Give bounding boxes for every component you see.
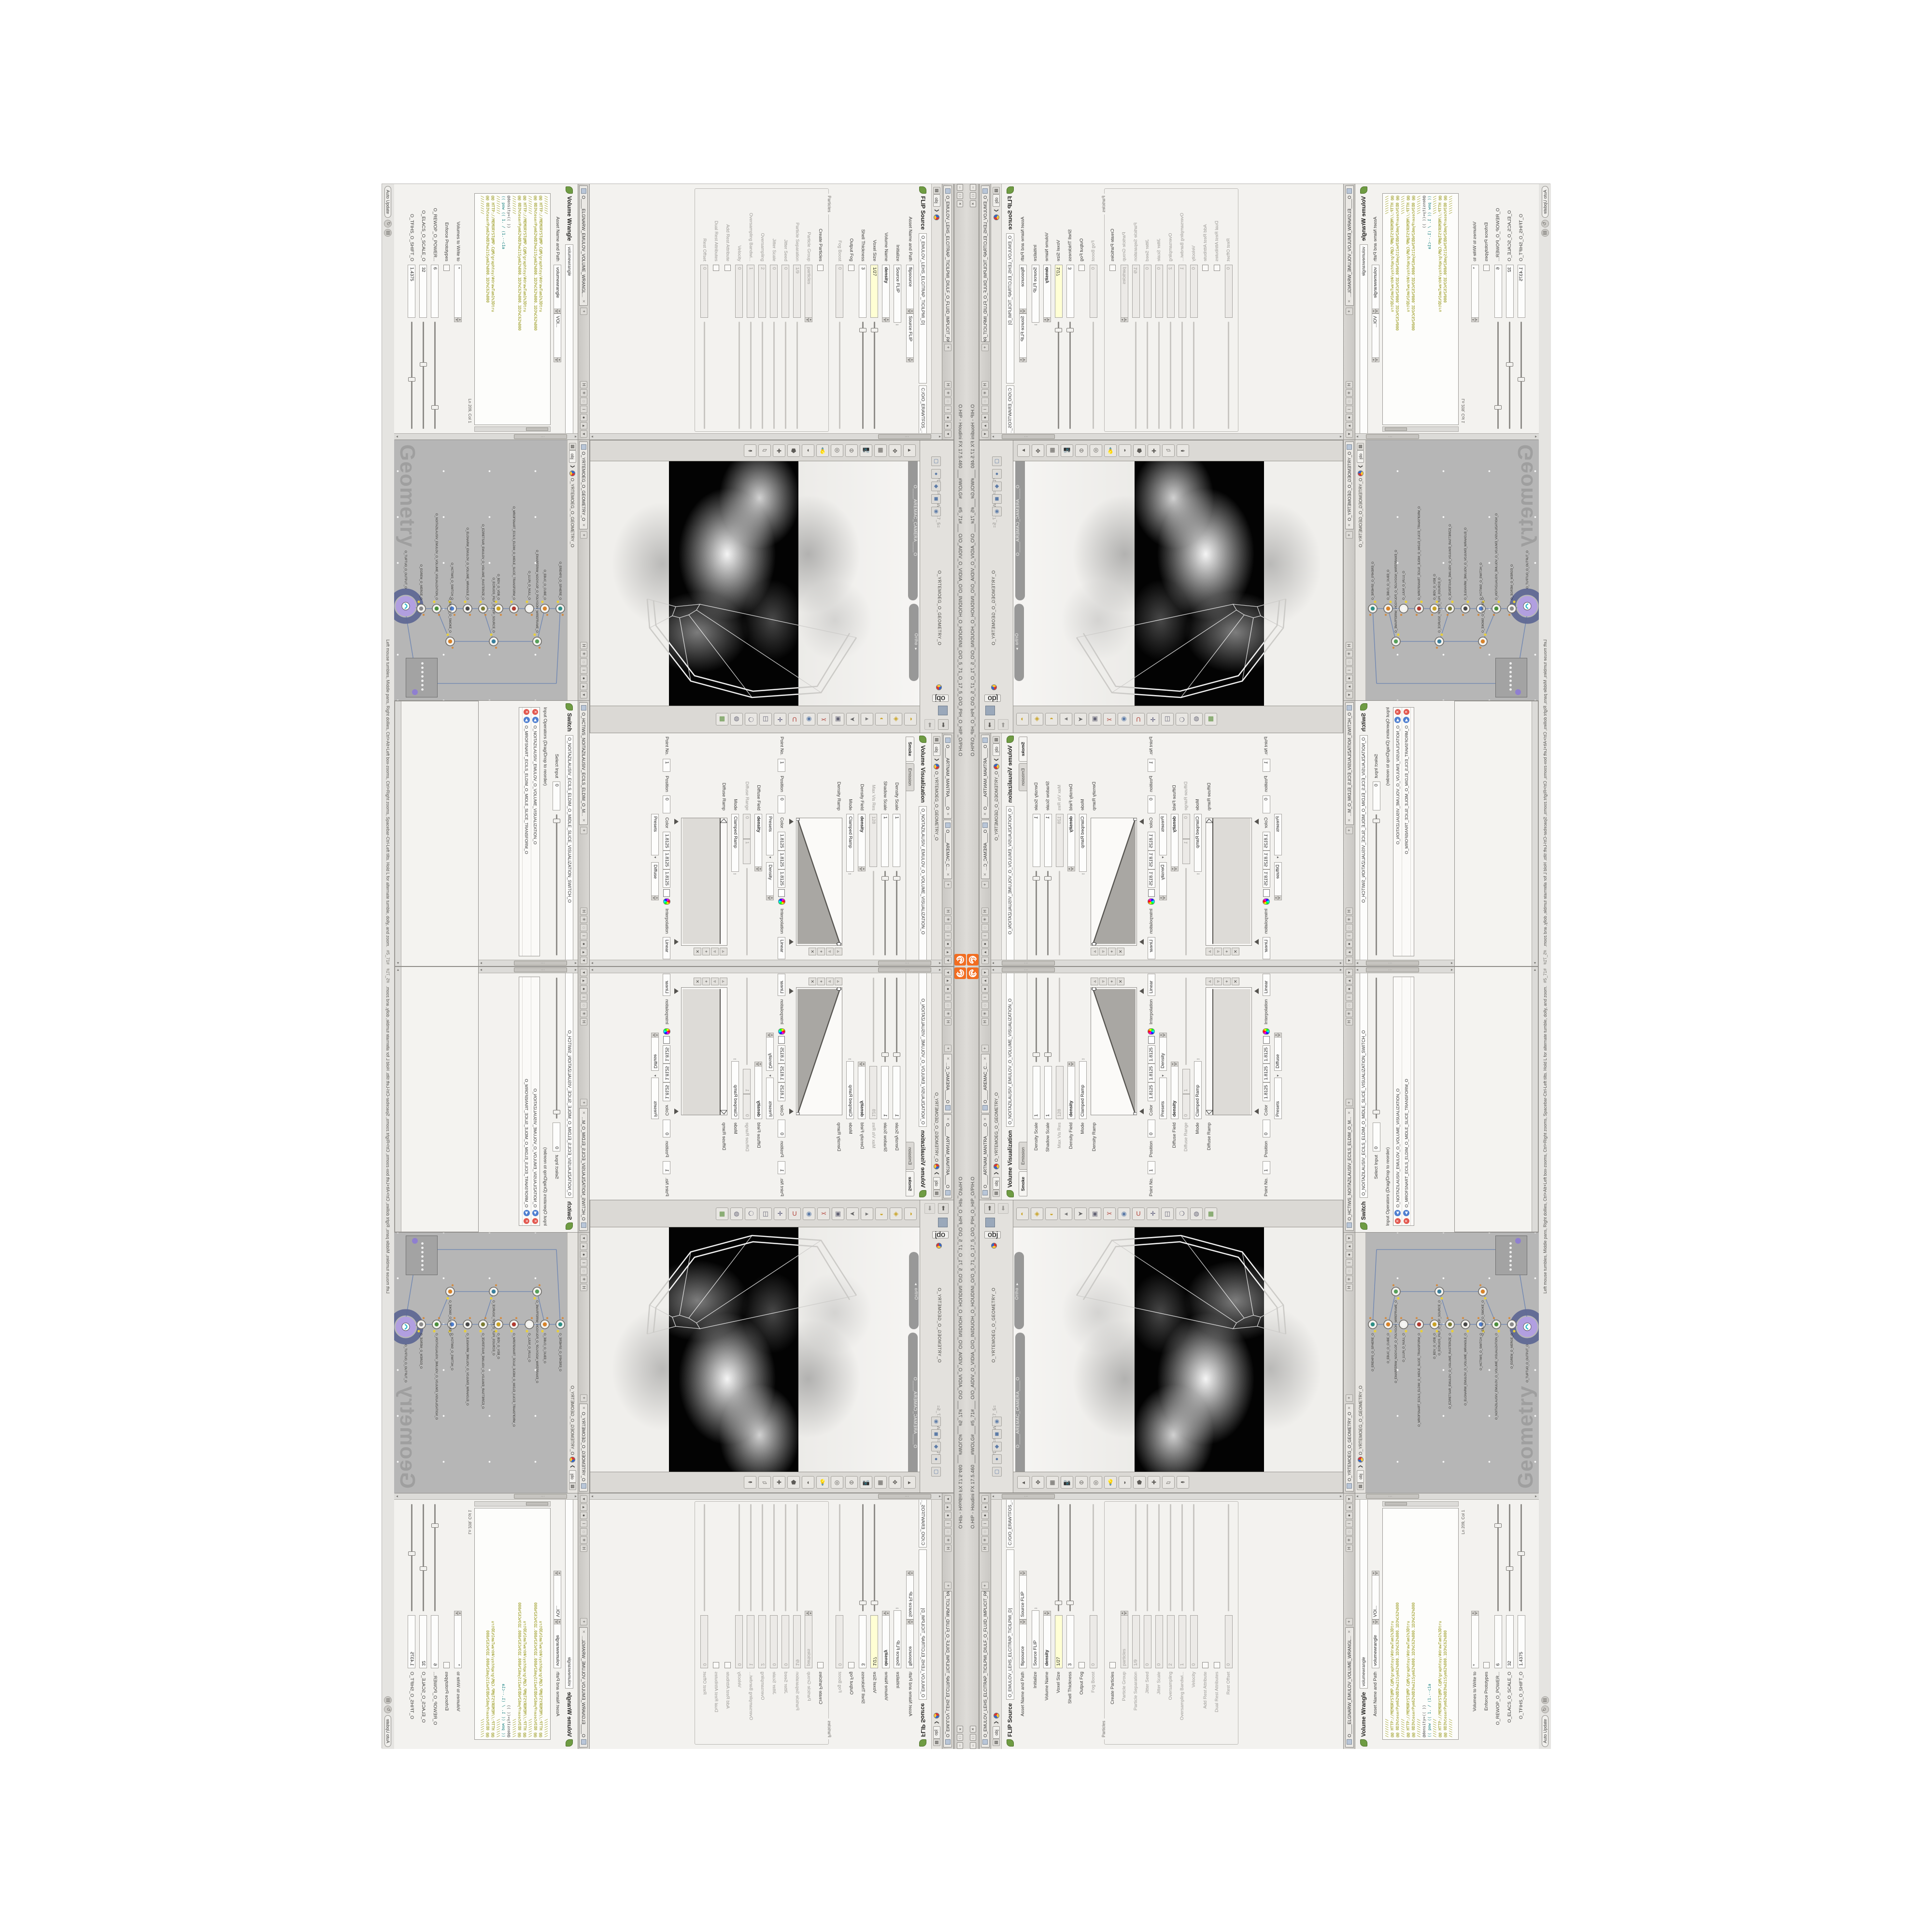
spinner-buttons[interactable]: ▲▼ bbox=[1274, 1033, 1282, 1037]
pane-maximize-icon[interactable]: ▴ bbox=[580, 977, 587, 984]
record-icon[interactable]: ● bbox=[580, 1251, 587, 1258]
spin-up-icon[interactable]: ▲ bbox=[770, 896, 774, 900]
spin-down-icon[interactable]: ▼ bbox=[1047, 318, 1051, 322]
add-tab-icon[interactable]: + bbox=[981, 1045, 989, 1052]
hide-icon[interactable]: ⊖ bbox=[1075, 444, 1088, 457]
view-icon[interactable]: ◉ bbox=[803, 1207, 815, 1220]
param-field[interactable]: 2 bbox=[1167, 1615, 1175, 1668]
info-icon[interactable]: i bbox=[981, 932, 989, 939]
record-icon[interactable]: ● bbox=[1346, 1512, 1353, 1519]
pane-scrollbar[interactable]: ▲▼ bbox=[589, 967, 942, 973]
param-field[interactable]: 0 bbox=[736, 1615, 743, 1668]
slider-handle[interactable] bbox=[1494, 1523, 1502, 1528]
param-field[interactable]: Linear bbox=[1263, 937, 1270, 959]
record-icon[interactable]: ● bbox=[1346, 675, 1353, 682]
ramp-point-marker[interactable] bbox=[1254, 819, 1259, 824]
shade-diamond-icon[interactable]: ◈ bbox=[1031, 1207, 1043, 1220]
param-slider[interactable] bbox=[1520, 322, 1522, 429]
param-slider[interactable] bbox=[1185, 868, 1187, 955]
network-node[interactable]: O_EMARFERIW_NOGYLOP_O_POLYGON_WIREFRAME_… bbox=[533, 550, 541, 649]
camera-pill[interactable]: O____AREMAC_CAMERA____O bbox=[908, 1333, 918, 1472]
screen-window-icon[interactable]: ▣ bbox=[1089, 1207, 1101, 1220]
checkbox[interactable] bbox=[817, 265, 824, 271]
select-arrow-icon[interactable]: ➤ bbox=[846, 1207, 859, 1220]
param-field[interactable]: 0 bbox=[1148, 796, 1155, 813]
info-icon[interactable]: i bbox=[1346, 406, 1353, 413]
add-tab-icon[interactable]: + bbox=[981, 1582, 989, 1589]
checkbox[interactable] bbox=[1109, 1662, 1116, 1668]
color-swatch[interactable] bbox=[1263, 889, 1270, 897]
auto-update-selector[interactable]: Auto Update bbox=[1542, 186, 1548, 218]
param-field[interactable]: density bbox=[882, 265, 890, 318]
param-field[interactable]: flipsource bbox=[907, 1624, 914, 1668]
spin-down-icon[interactable]: ▼ bbox=[1278, 1033, 1282, 1037]
network-node[interactable]: O_BDV_O_VDB_O bbox=[494, 1317, 503, 1359]
param-slider[interactable] bbox=[1170, 322, 1171, 429]
param-field[interactable]: Clamped Ramp bbox=[847, 814, 854, 872]
network-editor-pane-breadcrumb-path[interactable]: O_YRTEMOEG_O_GEOMETRY_O bbox=[1358, 1386, 1363, 1455]
spin-down-icon[interactable]: ▼ bbox=[554, 1619, 558, 1624]
pane-maximize-icon[interactable]: ▴ bbox=[1346, 977, 1353, 984]
switch-input-list[interactable]: ✕◀O_NOITAZILAUSIV_EMULOV_O_VOLUME_VISUAL… bbox=[1393, 707, 1414, 956]
plane-tool-icon[interactable]: ▱ bbox=[758, 1476, 771, 1489]
add-tab-icon[interactable]: + bbox=[1346, 827, 1353, 834]
add-tab-icon[interactable]: + bbox=[1346, 308, 1353, 315]
param-field[interactable]: 0 bbox=[770, 1615, 778, 1668]
slider-handle[interactable] bbox=[1373, 1110, 1380, 1114]
slider-handle[interactable] bbox=[1066, 1601, 1074, 1605]
nav-back-icon[interactable]: ⬆ bbox=[938, 1203, 949, 1214]
poly-tool-icon[interactable]: ⬟ bbox=[787, 1476, 800, 1489]
pane-nav-icon[interactable]: ▾ bbox=[1346, 969, 1353, 976]
remove-input-icon[interactable]: ✕ bbox=[1395, 1218, 1401, 1224]
param-field[interactable]: 1 bbox=[1179, 265, 1186, 318]
param-field[interactable]: 0 bbox=[743, 1094, 751, 1119]
flip-source-pane-breadcrumb-root[interactable]: obj bbox=[993, 1726, 1000, 1739]
nav-back-icon[interactable]: ⬆ bbox=[984, 1203, 995, 1214]
param-field[interactable]: 1 bbox=[663, 759, 671, 772]
material-shade-icon[interactable]: ◒ bbox=[875, 1207, 888, 1220]
switch-pane-tab[interactable]: O_HCTIWS_NOITAZILAUSIV_ECILS_ELDIM_O_M..… bbox=[1345, 702, 1354, 825]
zoom-tool-icon[interactable]: ◎ bbox=[1090, 1476, 1102, 1489]
network-node[interactable]: O_BDV_O_VDB_O bbox=[494, 574, 503, 616]
pen-tool-icon[interactable]: ✒ bbox=[1177, 1476, 1189, 1489]
cook-refresh-icon[interactable]: ↻ bbox=[1541, 1705, 1549, 1713]
viewport-breadcrumb-root[interactable]: obj bbox=[932, 1231, 949, 1238]
param-field[interactable]: 0 bbox=[1373, 1122, 1380, 1151]
slider-handle[interactable] bbox=[881, 1053, 889, 1057]
param-field[interactable]: 1.8125 bbox=[1263, 1082, 1270, 1101]
add-tool-icon[interactable]: ✚ bbox=[773, 1476, 785, 1489]
param-slider[interactable] bbox=[1059, 871, 1060, 955]
scroll-thumb[interactable] bbox=[514, 961, 567, 966]
network-node[interactable]: O_MROFSNART_ECILS_ELDIM_O_MIDLE_SLICE_TR… bbox=[510, 506, 518, 616]
spinner-buttons[interactable]: ▲▼ bbox=[767, 1033, 774, 1037]
info-icon[interactable]: i bbox=[1346, 667, 1353, 674]
param-field[interactable]: density bbox=[1067, 814, 1075, 867]
slider-handle[interactable] bbox=[420, 362, 427, 367]
network-icon[interactable]: ▦ bbox=[933, 736, 940, 743]
spin-up-icon[interactable]: ▲ bbox=[655, 896, 659, 900]
scroll-down-icon[interactable]: ▼ bbox=[589, 961, 594, 966]
nav-forward-icon[interactable]: ⬇ bbox=[998, 1203, 1009, 1214]
close-icon[interactable]: ✕ bbox=[946, 1057, 950, 1060]
magnifier-icon[interactable]: ◌ bbox=[944, 1528, 952, 1535]
spin-up-icon[interactable]: ▲ bbox=[1043, 318, 1047, 322]
param-field[interactable]: Clamped Ramp bbox=[847, 1061, 854, 1119]
ramp-up-icon[interactable]: ▵ bbox=[720, 948, 727, 955]
spin-down-icon[interactable]: ▼ bbox=[767, 1033, 770, 1037]
param-field[interactable]: 1 bbox=[1182, 1069, 1190, 1094]
network-editor-pane-breadcrumb-root[interactable]: obj bbox=[1357, 1470, 1364, 1483]
spin-up-icon[interactable]: ▲ bbox=[759, 1062, 763, 1066]
magnifier-icon[interactable]: ◌ bbox=[944, 398, 952, 405]
add-tab-icon[interactable]: + bbox=[981, 881, 989, 888]
network-node[interactable]: O_NOITAZILAUSIV_EMULOV_O_VOLUME_VISUALIZ… bbox=[1492, 1317, 1501, 1420]
param-field[interactable]: 1 bbox=[1148, 1161, 1155, 1174]
houdini-help-icon[interactable]: H bbox=[981, 1018, 989, 1025]
ramp-delete-icon[interactable]: ✕ bbox=[694, 978, 701, 985]
nav-back-icon[interactable]: ⬆ bbox=[938, 719, 949, 730]
gear-icon[interactable]: ✳ bbox=[944, 1010, 952, 1017]
add-tab-icon[interactable]: + bbox=[580, 1394, 587, 1402]
pane-nav-icon[interactable]: ▾ bbox=[944, 430, 952, 438]
pen-tool-icon[interactable]: ✒ bbox=[744, 1476, 756, 1489]
param-field[interactable]: 0 bbox=[1090, 1615, 1097, 1668]
viewport-canvas[interactable]: Ortho ▾O____AREMAC_CAMERA____O bbox=[590, 461, 920, 706]
pane-nav-icon[interactable]: ▾ bbox=[981, 1495, 989, 1503]
ramp-channel-dropdown[interactable]: Diffuse bbox=[1274, 1037, 1282, 1071]
window-minimize-icon[interactable]: – bbox=[957, 1742, 964, 1749]
spin-down-icon[interactable]: ▼ bbox=[1278, 896, 1282, 900]
split-view-icon[interactable]: ◫ bbox=[759, 713, 772, 726]
scroll-up-icon[interactable]: ▲ bbox=[573, 434, 578, 439]
volume-wrangle-pane-tab[interactable]: O____ELGNARW_EMULOV_VOLUME_WRANGL...✕ bbox=[580, 185, 588, 306]
half-icon[interactable]: ◗ bbox=[1119, 444, 1131, 457]
param-field[interactable]: 1 bbox=[778, 759, 786, 772]
ramp-widget[interactable]: ▵▿+✕ bbox=[674, 818, 728, 956]
spin-up-icon[interactable]: ▲ bbox=[1274, 1033, 1278, 1037]
network-node[interactable]: O_EREHPS_O_SPHERE_O bbox=[1368, 1317, 1377, 1371]
param-field[interactable]: 1.8125 bbox=[663, 832, 671, 851]
network-editor-canvas[interactable]: GeometryO_EREHPS_O_SPHERE_OO_EBUC_O_CUBE… bbox=[1366, 440, 1539, 700]
folder-tab-emission[interactable]: Emission bbox=[906, 763, 914, 792]
param-slider[interactable] bbox=[785, 1504, 786, 1611]
scroll-thumb[interactable] bbox=[878, 434, 931, 439]
gear-icon[interactable]: ✳ bbox=[1346, 389, 1353, 397]
network-node[interactable]: O_ELGNARW_EMULOV_O_VOLUME_WRANGLE_O bbox=[1461, 1317, 1470, 1406]
param-slider[interactable] bbox=[884, 978, 886, 1062]
ramp-channel-dropdown[interactable]: Density bbox=[767, 862, 774, 896]
info-icon[interactable]: i bbox=[1346, 932, 1353, 939]
param-field[interactable]: 0 bbox=[553, 781, 561, 810]
scroll-down-icon[interactable]: ▼ bbox=[589, 434, 594, 439]
shade-diamond-icon[interactable]: ◈ bbox=[890, 1207, 902, 1220]
param-field[interactable]: Linear bbox=[1148, 937, 1155, 959]
spin-up-icon[interactable]: ▲ bbox=[458, 1611, 462, 1615]
volume-wrangle-node-name[interactable]: volumewrangle bbox=[1360, 1496, 1368, 1689]
move-tool-icon[interactable]: ✥ bbox=[1032, 444, 1044, 457]
spinner-buttons[interactable]: ▲▼ bbox=[907, 1571, 914, 1575]
slider-handle[interactable] bbox=[408, 1551, 415, 1556]
lasso-icon[interactable]: ❍ bbox=[745, 713, 757, 726]
param-slider[interactable] bbox=[874, 322, 875, 429]
param-field[interactable]: 1 bbox=[1182, 839, 1190, 864]
flip-source-asset-path[interactable]: C:/O/O_ERAWTFOS_... bbox=[919, 1496, 927, 1548]
pane-scrollbar[interactable]: ▲▼ bbox=[478, 960, 578, 966]
param-field[interactable]: density bbox=[755, 814, 763, 867]
param-field[interactable]: 128 bbox=[1056, 814, 1064, 867]
param-field[interactable]: Linear bbox=[778, 937, 786, 959]
network-editor-pane-tab[interactable]: O_YRTEMOEG_O_GEOMETRY_O✕ bbox=[580, 1404, 588, 1492]
folder-tab-smoke[interactable]: Smoke bbox=[1019, 737, 1027, 762]
param-field[interactable]: density bbox=[858, 814, 866, 867]
split-view-icon[interactable]: ◫ bbox=[1161, 713, 1174, 726]
add-tab-icon[interactable]: + bbox=[944, 344, 952, 351]
checkbox[interactable] bbox=[724, 265, 731, 271]
network-node[interactable]: O_EBUC_O_CUBE_O bbox=[1384, 569, 1392, 616]
pane-nav-icon[interactable]: ▾ bbox=[981, 957, 989, 964]
param-slider[interactable] bbox=[556, 814, 557, 955]
spin-down-icon[interactable]: ▼ bbox=[554, 358, 558, 362]
flip-source-node-name[interactable]: O_EMULOV_LEHS_ELCITRAP_TICILPMI_D] bbox=[1006, 233, 1014, 384]
param-field[interactable]: 1 bbox=[743, 839, 751, 864]
network-node[interactable]: O_MROFSNART_ECILS_ELDIM_O_MIDLE_SLICE_TR… bbox=[510, 1317, 518, 1427]
spinner-buttons[interactable]: ▲▼ bbox=[455, 318, 462, 322]
code-scroll-thumb[interactable] bbox=[526, 427, 548, 431]
flip-source-pane-tab[interactable]: O_EMULOV_LEHS_ELCITRAP_TICILPMI_DIULF_O_… bbox=[944, 1591, 952, 1747]
hide-icon[interactable]: ⊖ bbox=[845, 1476, 858, 1489]
scroll-down-icon[interactable]: ▼ bbox=[394, 434, 399, 439]
folder-tab-smoke[interactable]: Smoke bbox=[906, 1171, 914, 1196]
ramp-down-icon[interactable]: ▿ bbox=[711, 948, 719, 955]
spin-up-icon[interactable]: ▲ bbox=[1019, 1571, 1023, 1575]
param-field[interactable]: 1/27 bbox=[1055, 265, 1063, 318]
spinner-buttons[interactable]: ▲▼ bbox=[805, 1611, 813, 1615]
param-field[interactable]: 1.8125 bbox=[778, 1064, 786, 1082]
checkbox[interactable] bbox=[1109, 265, 1116, 271]
param-field[interactable]: 1.8125 bbox=[778, 869, 786, 888]
code-scrollbar[interactable] bbox=[474, 1501, 551, 1506]
spin-down-icon[interactable]: ▼ bbox=[1376, 358, 1379, 362]
close-icon[interactable]: ✕ bbox=[983, 1117, 987, 1121]
info-icon[interactable]: i bbox=[580, 667, 587, 674]
ramp-up-icon[interactable]: ▵ bbox=[835, 948, 842, 955]
scroll-thumb[interactable] bbox=[514, 967, 567, 972]
network-editor-canvas[interactable]: GeometryO_EREHPS_O_SPHERE_OO_EBUC_O_CUBE… bbox=[394, 440, 567, 700]
houdini-help-icon[interactable]: H bbox=[1346, 1284, 1353, 1291]
spinner-buttons[interactable]: ▲▼ bbox=[652, 896, 659, 900]
info-icon[interactable]: i bbox=[580, 994, 587, 1001]
move-tool-icon[interactable]: ✥ bbox=[1032, 1476, 1044, 1489]
param-field[interactable]: density bbox=[882, 1615, 890, 1668]
brush-icon[interactable]: ◍ bbox=[730, 713, 743, 726]
spin-down-icon[interactable]: ▼ bbox=[1023, 1571, 1027, 1575]
param-field[interactable]: 1.8125 bbox=[663, 851, 671, 869]
param-field[interactable]: Linear bbox=[663, 937, 671, 959]
ramp-channel-dropdown[interactable]: Diffuse bbox=[652, 1037, 659, 1071]
ramp-up-icon[interactable]: ▵ bbox=[1091, 978, 1098, 985]
param-field[interactable]: Clamped Ramp bbox=[732, 1061, 739, 1119]
pane-nav-icon[interactable]: ▾ bbox=[944, 1495, 952, 1503]
ramp-up-icon[interactable]: ▵ bbox=[1206, 948, 1213, 955]
network-node[interactable]: O_LLUN_O_NULL_O bbox=[525, 1317, 534, 1362]
ramp-point-marker[interactable] bbox=[789, 1108, 794, 1114]
param-slider[interactable] bbox=[423, 322, 424, 429]
handles-icon[interactable]: ✛ bbox=[1147, 1207, 1159, 1220]
pane-maximize-icon[interactable]: ▴ bbox=[981, 977, 989, 984]
spinner-buttons[interactable]: ▲▼ bbox=[1372, 1571, 1379, 1575]
pane-maximize-icon[interactable]: ▴ bbox=[944, 422, 952, 429]
volume-visualization-node-name[interactable]: O_NOITAZILAUSIV_EMULOV_O_VOLUME_VISUALIZ… bbox=[1006, 806, 1014, 963]
pane-maximize-icon[interactable]: ▴ bbox=[580, 1243, 587, 1250]
ramp-canvas[interactable] bbox=[1206, 987, 1252, 1115]
param-field[interactable]: Source FLIP bbox=[1032, 1610, 1039, 1668]
param-field[interactable]: 0 bbox=[1225, 1615, 1233, 1668]
param-field[interactable]: 1 bbox=[1263, 759, 1270, 772]
spin-down-icon[interactable]: ▼ bbox=[1475, 1611, 1479, 1615]
param-slider[interactable] bbox=[750, 1504, 752, 1611]
volume-visualization-node-name[interactable]: O_NOITAZILAUSIV_EMULOV_O_VOLUME_VISUALIZ… bbox=[1006, 970, 1014, 1127]
window-maximize-icon[interactable]: □ bbox=[970, 192, 976, 199]
spin-up-icon[interactable]: ▲ bbox=[1372, 358, 1376, 362]
volume-visualization-pane-tab[interactable]: O____ARTNAM_MANTRA____O✕ bbox=[944, 1114, 952, 1198]
scroll-thumb[interactable] bbox=[1366, 961, 1419, 966]
volume-visualization-pane-breadcrumb-root[interactable]: obj bbox=[993, 1177, 1000, 1190]
nav-forward-icon[interactable]: ⬇ bbox=[998, 719, 1009, 730]
window-minimize-icon[interactable]: – bbox=[970, 184, 976, 191]
ramp-channel-dropdown[interactable]: Density bbox=[1159, 1037, 1167, 1071]
remove-input-icon[interactable]: ✕ bbox=[524, 1218, 530, 1224]
gear-icon[interactable]: ✳ bbox=[580, 916, 587, 923]
volume-wrangle-node-name[interactable]: volumewrangle bbox=[566, 1496, 574, 1689]
param-slider[interactable] bbox=[739, 1504, 740, 1611]
presets-dropdown[interactable]: Presets bbox=[1274, 1078, 1282, 1119]
slider-handle[interactable] bbox=[859, 1601, 867, 1605]
record-icon[interactable]: ● bbox=[981, 1512, 989, 1519]
checkbox[interactable] bbox=[1079, 1662, 1085, 1668]
magnifier-icon[interactable]: ◌ bbox=[580, 924, 587, 931]
flip-source-node-name[interactable]: O_EMULOV_LEHS_ELCITRAP_TICILPMI_D] bbox=[919, 1549, 927, 1700]
color-wheel-icon[interactable] bbox=[778, 898, 785, 905]
scroll-up-icon[interactable]: ▲ bbox=[573, 961, 578, 966]
spinner-buttons[interactable]: ▲▼ bbox=[907, 1619, 914, 1624]
zoom-tool-icon[interactable]: ◎ bbox=[831, 444, 843, 457]
pane-maximize-icon[interactable]: ▴ bbox=[1346, 422, 1353, 429]
view-icon[interactable]: ◉ bbox=[803, 713, 815, 726]
scroll-up-icon[interactable]: ▲ bbox=[1355, 434, 1360, 439]
param-slider[interactable] bbox=[1147, 322, 1148, 429]
param-field[interactable]: Linear bbox=[1148, 974, 1155, 996]
param-slider[interactable] bbox=[773, 1504, 775, 1611]
close-icon[interactable]: ✕ bbox=[983, 1057, 987, 1060]
spinner-buttons[interactable]: ▲▼ bbox=[1121, 1611, 1128, 1615]
param-field[interactable]: 1/9 bbox=[1132, 1615, 1140, 1668]
param-field[interactable]: 1.4375 bbox=[1518, 1615, 1525, 1668]
ramp-down-icon[interactable]: ▿ bbox=[1099, 948, 1107, 955]
ramp-add-icon[interactable]: + bbox=[1223, 978, 1231, 985]
handles-icon[interactable]: ✛ bbox=[1147, 713, 1159, 726]
spin-down-icon[interactable]: ▼ bbox=[1376, 1619, 1379, 1624]
pane-scrollbar[interactable]: ▲▼ bbox=[991, 1493, 1344, 1500]
param-field[interactable]: 0 bbox=[778, 1120, 786, 1137]
pane-maximize-icon[interactable]: ▴ bbox=[981, 949, 989, 956]
poly-tool-icon[interactable]: ⬟ bbox=[787, 444, 800, 457]
spinner-buttons[interactable]: ▲▼ bbox=[1019, 1571, 1027, 1575]
flip-source-pane-tab[interactable]: O_EMULOV_LEHS_ELCITRAP_TICILPMI_DIULF_O_… bbox=[981, 185, 990, 342]
plane-tool-icon[interactable]: ▱ bbox=[758, 444, 771, 457]
ramp-add-icon[interactable]: + bbox=[817, 948, 825, 955]
param-field[interactable]: 128 bbox=[870, 1066, 878, 1119]
add-tab-icon[interactable]: + bbox=[580, 1099, 587, 1106]
network-editor-pane-breadcrumb-path[interactable]: O_YRTEMOEG_O_GEOMETRY_O bbox=[570, 1386, 575, 1455]
code-scrollbar[interactable] bbox=[474, 426, 551, 432]
ramp-widget[interactable]: ▵▿+✕ bbox=[1090, 818, 1144, 956]
color-swatch[interactable] bbox=[664, 1036, 670, 1044]
scroll-thumb[interactable] bbox=[878, 961, 931, 966]
houdini-help-icon[interactable]: H bbox=[944, 381, 952, 388]
param-field[interactable]: 0 bbox=[1144, 265, 1151, 318]
add-tab-icon[interactable]: + bbox=[944, 881, 952, 888]
spin-up-icon[interactable]: ▲ bbox=[862, 1062, 866, 1066]
pane-maximize-icon[interactable]: ▴ bbox=[981, 422, 989, 429]
spin-down-icon[interactable]: ▼ bbox=[907, 309, 910, 313]
info-icon[interactable]: i bbox=[1346, 1259, 1353, 1266]
record-icon[interactable]: ● bbox=[981, 940, 989, 948]
view-frame-icon[interactable]: ▢ bbox=[992, 1467, 1002, 1477]
param-field[interactable]: 32 bbox=[1506, 265, 1514, 318]
ramp-delete-icon[interactable]: ✕ bbox=[1117, 948, 1124, 955]
remove-input-icon[interactable]: ✕ bbox=[533, 1218, 539, 1224]
empty-pane-scrollbar[interactable]: ▲ bbox=[1532, 967, 1538, 1232]
folder-tab-smoke[interactable]: Smoke bbox=[906, 737, 914, 762]
vex-snippet-editor[interactable]: ////////@@ HTTP://MEMORYST@MP.C@M/grapht… bbox=[1382, 193, 1459, 425]
color-swatch[interactable] bbox=[1263, 1036, 1270, 1044]
flip-source-pane-breadcrumb-root[interactable]: obj bbox=[993, 194, 1000, 207]
spinner-buttons[interactable]: ▲▼ bbox=[455, 1611, 462, 1615]
spin-up-icon[interactable]: ▲ bbox=[1274, 896, 1278, 900]
spin-up-icon[interactable]: ▲ bbox=[1159, 1033, 1163, 1037]
param-field[interactable]: 1.8125 bbox=[663, 1045, 671, 1064]
spin-down-icon[interactable]: ▼ bbox=[652, 1033, 655, 1037]
record-icon[interactable]: ● bbox=[1346, 940, 1353, 948]
param-field[interactable]: flipsource bbox=[907, 265, 914, 309]
light-tool-icon[interactable]: 💡 bbox=[1104, 444, 1117, 457]
spin-down-icon[interactable]: ▼ bbox=[805, 318, 809, 322]
checkbox[interactable] bbox=[848, 1662, 854, 1668]
flip-source-node-name[interactable]: O_EMULOV_LEHS_ELCITRAP_TICILPMI_D] bbox=[1006, 1549, 1014, 1700]
ramp-delete-icon[interactable]: ✕ bbox=[809, 978, 816, 985]
param-field[interactable]: 0 bbox=[701, 265, 709, 318]
param-field[interactable]: 6 bbox=[431, 265, 439, 318]
switch-input-item[interactable]: ✕◀O_MROFSNART_ECILS_ELDIM_O_MIDLE_SLICE_… bbox=[1402, 977, 1411, 1225]
spinner-buttons[interactable]: ▲▼ bbox=[1019, 1619, 1027, 1624]
uv-grid-icon[interactable]: ▦ bbox=[1046, 444, 1059, 457]
memory-icon[interactable]: ▤ bbox=[1541, 1696, 1549, 1704]
network-icon[interactable]: ▦ bbox=[933, 187, 940, 194]
switch-input-item[interactable]: ✕◀O_NOITAZILAUSIV_EMULOV_O_VOLUME_VISUAL… bbox=[531, 708, 540, 956]
split-view-icon[interactable]: ◫ bbox=[1161, 1207, 1174, 1220]
auto-update-selector[interactable]: Auto Update bbox=[384, 186, 391, 218]
ramp-channel-dropdown[interactable]: Diffuse bbox=[1274, 862, 1282, 896]
close-icon[interactable]: ✕ bbox=[582, 1406, 586, 1410]
spin-up-icon[interactable]: ▲ bbox=[809, 318, 813, 322]
ramp-point-marker[interactable] bbox=[1254, 1108, 1259, 1114]
spin-up-icon[interactable]: ▲ bbox=[1171, 867, 1175, 871]
param-field[interactable]: Linear bbox=[778, 974, 786, 996]
pane-nav-icon[interactable]: ▾ bbox=[1346, 691, 1353, 698]
magnet-icon[interactable]: U bbox=[1132, 1207, 1145, 1220]
